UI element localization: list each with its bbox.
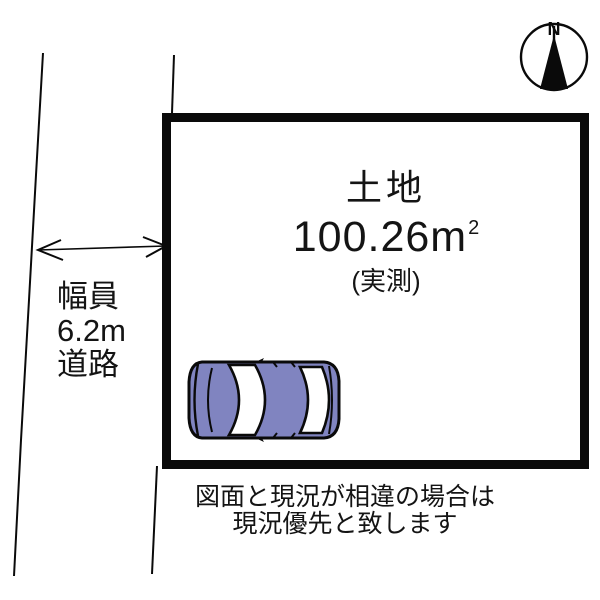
road-width-label-line1: 幅員 (57, 280, 126, 314)
land-title: 土地 (230, 168, 542, 208)
land-area-unit: m (430, 213, 467, 261)
land-area-value: 100.26m2 (230, 214, 542, 261)
land-measurement-note: (実測) (230, 267, 542, 296)
disclaimer-line1: 図面と現況が相違の場合は (172, 484, 518, 511)
road-width-label-line3: 道路 (57, 348, 126, 382)
north-needle-icon (540, 35, 568, 89)
disclaimer-note: 図面と現況が相違の場合は 現況優先と致します (172, 484, 518, 538)
road-width-label: 幅員 6.2m 道路 (57, 280, 126, 382)
car-icon (185, 357, 343, 443)
site-plan-canvas: N 土地 100.26m2 (実測) 幅員 6.2m 道路 図面と現況が相違の場 (0, 0, 600, 600)
road-left-edge-line (14, 53, 43, 576)
compass-north-label: N (548, 19, 561, 39)
road-right-edge-line-upper (172, 55, 174, 113)
road-width-label-line2: 6.2m (57, 314, 126, 348)
road-right-edge-line-lower (152, 466, 157, 574)
land-area-number: 100.26 (293, 213, 431, 261)
land-label-block: 土地 100.26m2 (実測) (230, 168, 542, 295)
disclaimer-line2: 現況優先と致します (172, 511, 518, 538)
road-width-arrow (38, 237, 166, 260)
compass: N (512, 8, 596, 96)
land-area-exponent: 2 (468, 217, 480, 239)
